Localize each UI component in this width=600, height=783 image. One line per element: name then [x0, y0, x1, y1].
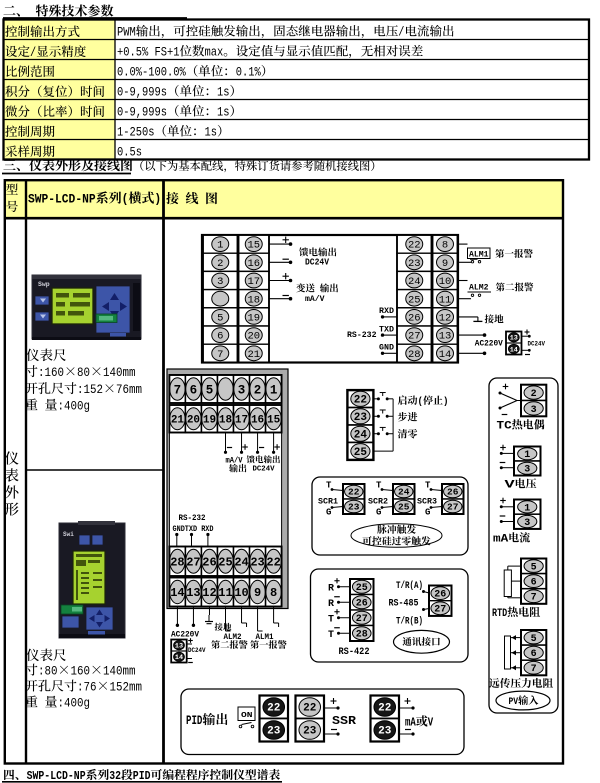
svg-text:21: 21 [171, 414, 185, 426]
svg-text:18: 18 [219, 414, 233, 426]
svg-text:16: 16 [251, 414, 264, 426]
svg-text:22: 22 [378, 703, 391, 715]
svg-text:26: 26 [434, 590, 446, 601]
svg-text:24: 24 [408, 276, 421, 288]
svg-text:R: R [328, 583, 334, 594]
svg-text:23: 23 [354, 412, 368, 424]
svg-text:22: 22 [348, 487, 360, 498]
svg-text:RS-422: RS-422 [339, 647, 370, 658]
svg-text:11: 11 [439, 294, 452, 306]
svg-text:32: 32 [109, 769, 121, 783]
svg-text:12: 12 [439, 312, 452, 324]
svg-text:1-250s: 1-250s [117, 126, 155, 140]
svg-text:7: 7 [531, 593, 537, 604]
svg-text:25: 25 [408, 294, 421, 306]
svg-text:14: 14 [175, 654, 183, 662]
svg-text:7: 7 [174, 383, 182, 397]
svg-text:25: 25 [356, 583, 368, 594]
svg-text:22: 22 [354, 395, 367, 407]
svg-text:ALM2: ALM2 [469, 284, 489, 293]
svg-text:+0.5% FS+1: +0.5% FS+1 [117, 46, 180, 60]
svg-text:27: 27 [408, 331, 421, 343]
svg-text:SWP-LCD-NP: SWP-LCD-NP [27, 769, 86, 783]
svg-text:13: 13 [175, 643, 183, 651]
svg-text:1: 1 [524, 503, 530, 514]
svg-text:(: ( [122, 192, 129, 207]
svg-text:13: 13 [439, 331, 452, 343]
svg-text:TXD: TXD [379, 325, 394, 334]
svg-text:3: 3 [217, 276, 223, 288]
svg-text:10: 10 [439, 276, 452, 288]
svg-text:2: 2 [254, 383, 262, 397]
svg-text:TC: TC [497, 421, 513, 433]
svg-text:19: 19 [247, 312, 260, 324]
svg-text:T: T [328, 614, 334, 625]
svg-text:8: 8 [270, 586, 277, 600]
svg-text:2: 2 [217, 258, 223, 270]
svg-text:0.1%: 0.1% [236, 66, 261, 80]
svg-text:(: ( [418, 396, 424, 408]
svg-text:AC220V: AC220V [475, 340, 503, 349]
svg-text:3: 3 [524, 465, 530, 476]
svg-text:28: 28 [356, 630, 368, 641]
svg-text:16: 16 [247, 258, 260, 270]
svg-text:1: 1 [270, 383, 278, 397]
svg-text:13: 13 [510, 335, 518, 343]
svg-text:PWM: PWM [117, 26, 136, 40]
svg-text:5: 5 [217, 312, 223, 324]
svg-text:21: 21 [247, 349, 260, 361]
svg-text:ALM1: ALM1 [256, 633, 274, 642]
svg-text:GND: GND [379, 344, 394, 353]
svg-text:V: V [428, 716, 434, 730]
svg-text:0.5s: 0.5s [117, 146, 142, 160]
svg-text:27: 27 [447, 502, 459, 513]
svg-text:22: 22 [266, 555, 280, 569]
svg-text:DC24V: DC24V [253, 466, 275, 474]
svg-text:15: 15 [267, 414, 281, 426]
svg-text:ALM2: ALM2 [224, 633, 242, 642]
svg-text:SSR: SSR [332, 714, 357, 728]
svg-text:27: 27 [434, 605, 446, 616]
svg-text:27: 27 [186, 555, 200, 569]
svg-text:1s: 1s [217, 86, 230, 100]
svg-text:23: 23 [303, 726, 317, 738]
svg-text:T/R(B): T/R(B) [396, 616, 423, 628]
svg-text:5: 5 [206, 383, 214, 397]
svg-text:ON: ON [241, 712, 253, 720]
svg-text:AC220V: AC220V [171, 631, 199, 640]
svg-text:SCR2: SCR2 [368, 498, 388, 507]
svg-text:PID: PID [186, 713, 203, 728]
svg-text:/: / [30, 46, 36, 60]
svg-text:Swp: Swp [38, 281, 50, 288]
svg-text:0-9,999s: 0-9,999s [117, 106, 167, 120]
svg-text:1: 1 [217, 240, 223, 252]
svg-text:3: 3 [531, 405, 537, 416]
svg-text:25: 25 [398, 502, 410, 513]
svg-text:24: 24 [234, 555, 248, 569]
svg-text:140mm: 140mm [103, 664, 136, 679]
svg-text:Swi: Swi [63, 531, 74, 538]
svg-text:14: 14 [439, 349, 452, 361]
svg-text:160: 160 [71, 664, 91, 679]
svg-text:ALM1: ALM1 [469, 251, 489, 260]
svg-text:140mm: 140mm [103, 365, 136, 380]
svg-text:13: 13 [186, 586, 200, 600]
svg-text:1: 1 [524, 450, 530, 461]
svg-text:PID: PID [133, 769, 151, 783]
svg-text:mA: mA [405, 716, 416, 730]
svg-text:15: 15 [247, 240, 260, 252]
svg-text:PV: PV [509, 697, 519, 708]
svg-text:5: 5 [531, 562, 537, 573]
svg-text:T: T [328, 630, 334, 641]
svg-text:1s: 1s [217, 106, 230, 120]
svg-text:G: G [376, 508, 381, 518]
svg-text:5: 5 [531, 634, 537, 645]
svg-text:max: max [205, 46, 224, 60]
svg-text:0.0%-100.0%: 0.0%-100.0% [117, 66, 186, 80]
svg-text:17: 17 [235, 414, 248, 426]
svg-text:22: 22 [408, 240, 421, 252]
svg-text:3: 3 [238, 383, 246, 397]
svg-text:76mm: 76mm [116, 382, 142, 397]
svg-text:27: 27 [356, 614, 368, 625]
svg-text:7: 7 [217, 349, 223, 361]
svg-text:DC24V: DC24V [305, 258, 330, 268]
svg-text:8: 8 [442, 240, 448, 252]
svg-text:R: R [328, 599, 334, 610]
svg-text:20: 20 [247, 331, 260, 343]
svg-text:6: 6 [531, 649, 537, 660]
svg-text:10: 10 [234, 586, 248, 600]
svg-text:RTD: RTD [492, 608, 507, 620]
svg-text:18: 18 [247, 294, 260, 306]
svg-text:1s: 1s [205, 126, 218, 140]
svg-text::400g: :400g [58, 696, 91, 711]
svg-text:7: 7 [531, 664, 537, 675]
svg-text:V: V [505, 480, 516, 492]
svg-text:mA: mA [493, 534, 509, 546]
svg-text::400g: :400g [58, 399, 91, 414]
svg-text:/: / [398, 26, 404, 40]
svg-text:22: 22 [303, 703, 316, 715]
svg-text:6: 6 [217, 331, 223, 343]
svg-text:28: 28 [170, 555, 184, 569]
svg-text:RXD: RXD [379, 307, 394, 316]
svg-text:23: 23 [267, 726, 281, 738]
svg-text:17: 17 [247, 276, 260, 288]
svg-text:26: 26 [408, 312, 421, 324]
svg-text:6: 6 [531, 578, 537, 589]
svg-text:9: 9 [254, 586, 261, 600]
svg-text:2: 2 [531, 389, 537, 400]
svg-text:DC24V: DC24V [528, 341, 546, 348]
svg-text::152: :152 [77, 382, 103, 397]
svg-text:): ) [443, 396, 449, 408]
svg-text::160: :160 [38, 365, 64, 380]
svg-text:RS-232: RS-232 [179, 513, 206, 523]
svg-text:G: G [425, 508, 430, 518]
svg-text:RS-232: RS-232 [347, 330, 377, 340]
svg-text:11: 11 [218, 586, 232, 600]
svg-text:0-9,999s: 0-9,999s [117, 86, 167, 100]
svg-text:22: 22 [267, 703, 280, 715]
svg-text:14: 14 [170, 586, 184, 600]
svg-text:80: 80 [77, 365, 90, 380]
svg-text:26: 26 [447, 487, 459, 498]
svg-text:12: 12 [202, 586, 216, 600]
svg-text:20: 20 [187, 414, 200, 426]
svg-text:23: 23 [348, 502, 360, 513]
svg-text:23: 23 [250, 555, 264, 569]
svg-text:RS-485: RS-485 [389, 599, 419, 610]
svg-text:23: 23 [378, 726, 392, 738]
svg-text::76: :76 [77, 680, 97, 695]
svg-text:3: 3 [524, 518, 530, 529]
svg-text:T/R(A): T/R(A) [396, 580, 423, 592]
svg-text:G: G [326, 508, 331, 518]
svg-text:26: 26 [356, 599, 368, 610]
svg-text:19: 19 [203, 414, 216, 426]
svg-text:mA/V: mA/V [305, 294, 325, 304]
svg-text::80: :80 [38, 664, 58, 679]
svg-text:24: 24 [354, 429, 368, 441]
svg-text:9: 9 [442, 258, 448, 270]
svg-text:): ) [154, 192, 161, 207]
svg-text:152mm: 152mm [110, 680, 143, 695]
svg-text:23: 23 [408, 258, 421, 270]
svg-text:25: 25 [354, 447, 368, 459]
svg-text:SCR1: SCR1 [318, 498, 338, 507]
svg-text:6: 6 [190, 383, 198, 397]
svg-text:26: 26 [202, 555, 216, 569]
svg-text:GNDTXD RXD: GNDTXD RXD [173, 525, 214, 534]
svg-text:SWP-LCD-NP: SWP-LCD-NP [28, 192, 96, 207]
svg-text:DC24V: DC24V [188, 647, 206, 654]
svg-text:SCR3: SCR3 [417, 498, 437, 507]
svg-text:14: 14 [510, 346, 518, 354]
svg-text:28: 28 [408, 349, 421, 361]
svg-text:25: 25 [218, 555, 232, 569]
svg-text:24: 24 [398, 487, 410, 498]
